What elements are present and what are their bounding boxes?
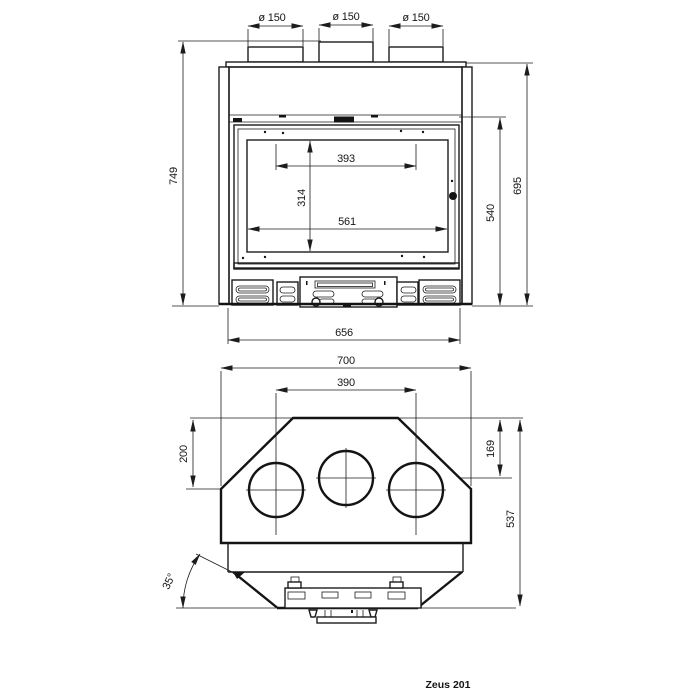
dim-overall-width: 700 (337, 355, 355, 367)
dim-flue-centers: 390 (337, 377, 355, 389)
dim-flue-1: ø 150 (258, 12, 285, 24)
plan-view: 700 390 200 169 537 35° (160, 355, 523, 623)
dim-bevel-angle: 35° (160, 572, 178, 592)
door-frame-outer (234, 125, 459, 268)
plan-front-section (176, 543, 516, 623)
door (234, 125, 459, 269)
control-strip (232, 277, 460, 307)
dim-insert-height: 540 (485, 204, 497, 222)
top-plate (226, 62, 466, 67)
door-screw-marks (242, 130, 425, 259)
flue-circle-right (389, 463, 443, 517)
flue-collars (248, 42, 443, 62)
dim-flue-2: ø 150 (332, 11, 359, 23)
door-frame-inner (238, 129, 455, 264)
dim-overall-depth: 537 (505, 510, 517, 528)
door-handle (449, 192, 457, 200)
drawing-svg: ø 150 ø 150 ø 150 749 393 314 561 (0, 0, 700, 700)
left-small-block (277, 282, 298, 305)
front-view: ø 150 ø 150 ø 150 749 393 314 561 (168, 11, 533, 344)
dim-glass-width: 561 (338, 216, 356, 228)
bevel-left (233, 572, 277, 608)
right-side-panel (462, 67, 472, 304)
angle-dimension: 35° (160, 554, 236, 608)
flue-circle-center (319, 451, 373, 505)
technical-drawing-sheet: ø 150 ø 150 ø 150 749 393 314 561 (0, 0, 700, 700)
base-feet (309, 610, 377, 623)
dim-opening-width: 393 (337, 153, 355, 165)
bevel-right (418, 572, 462, 608)
dim-left-depth: 200 (178, 445, 190, 463)
left-side-panel (219, 67, 229, 304)
dim-glass-height: 314 (296, 189, 308, 207)
hood-band (229, 115, 462, 123)
damper-handle (334, 117, 354, 123)
dim-flue-3: ø 150 (402, 12, 429, 24)
model-label: Zeus 201 (426, 679, 471, 691)
dim-body-width: 656 (335, 327, 353, 339)
flue-circle-left (249, 463, 303, 517)
dim-overall-height: 749 (168, 167, 180, 185)
dim-front-height: 695 (512, 177, 524, 195)
dim-right-depth: 169 (485, 440, 497, 458)
